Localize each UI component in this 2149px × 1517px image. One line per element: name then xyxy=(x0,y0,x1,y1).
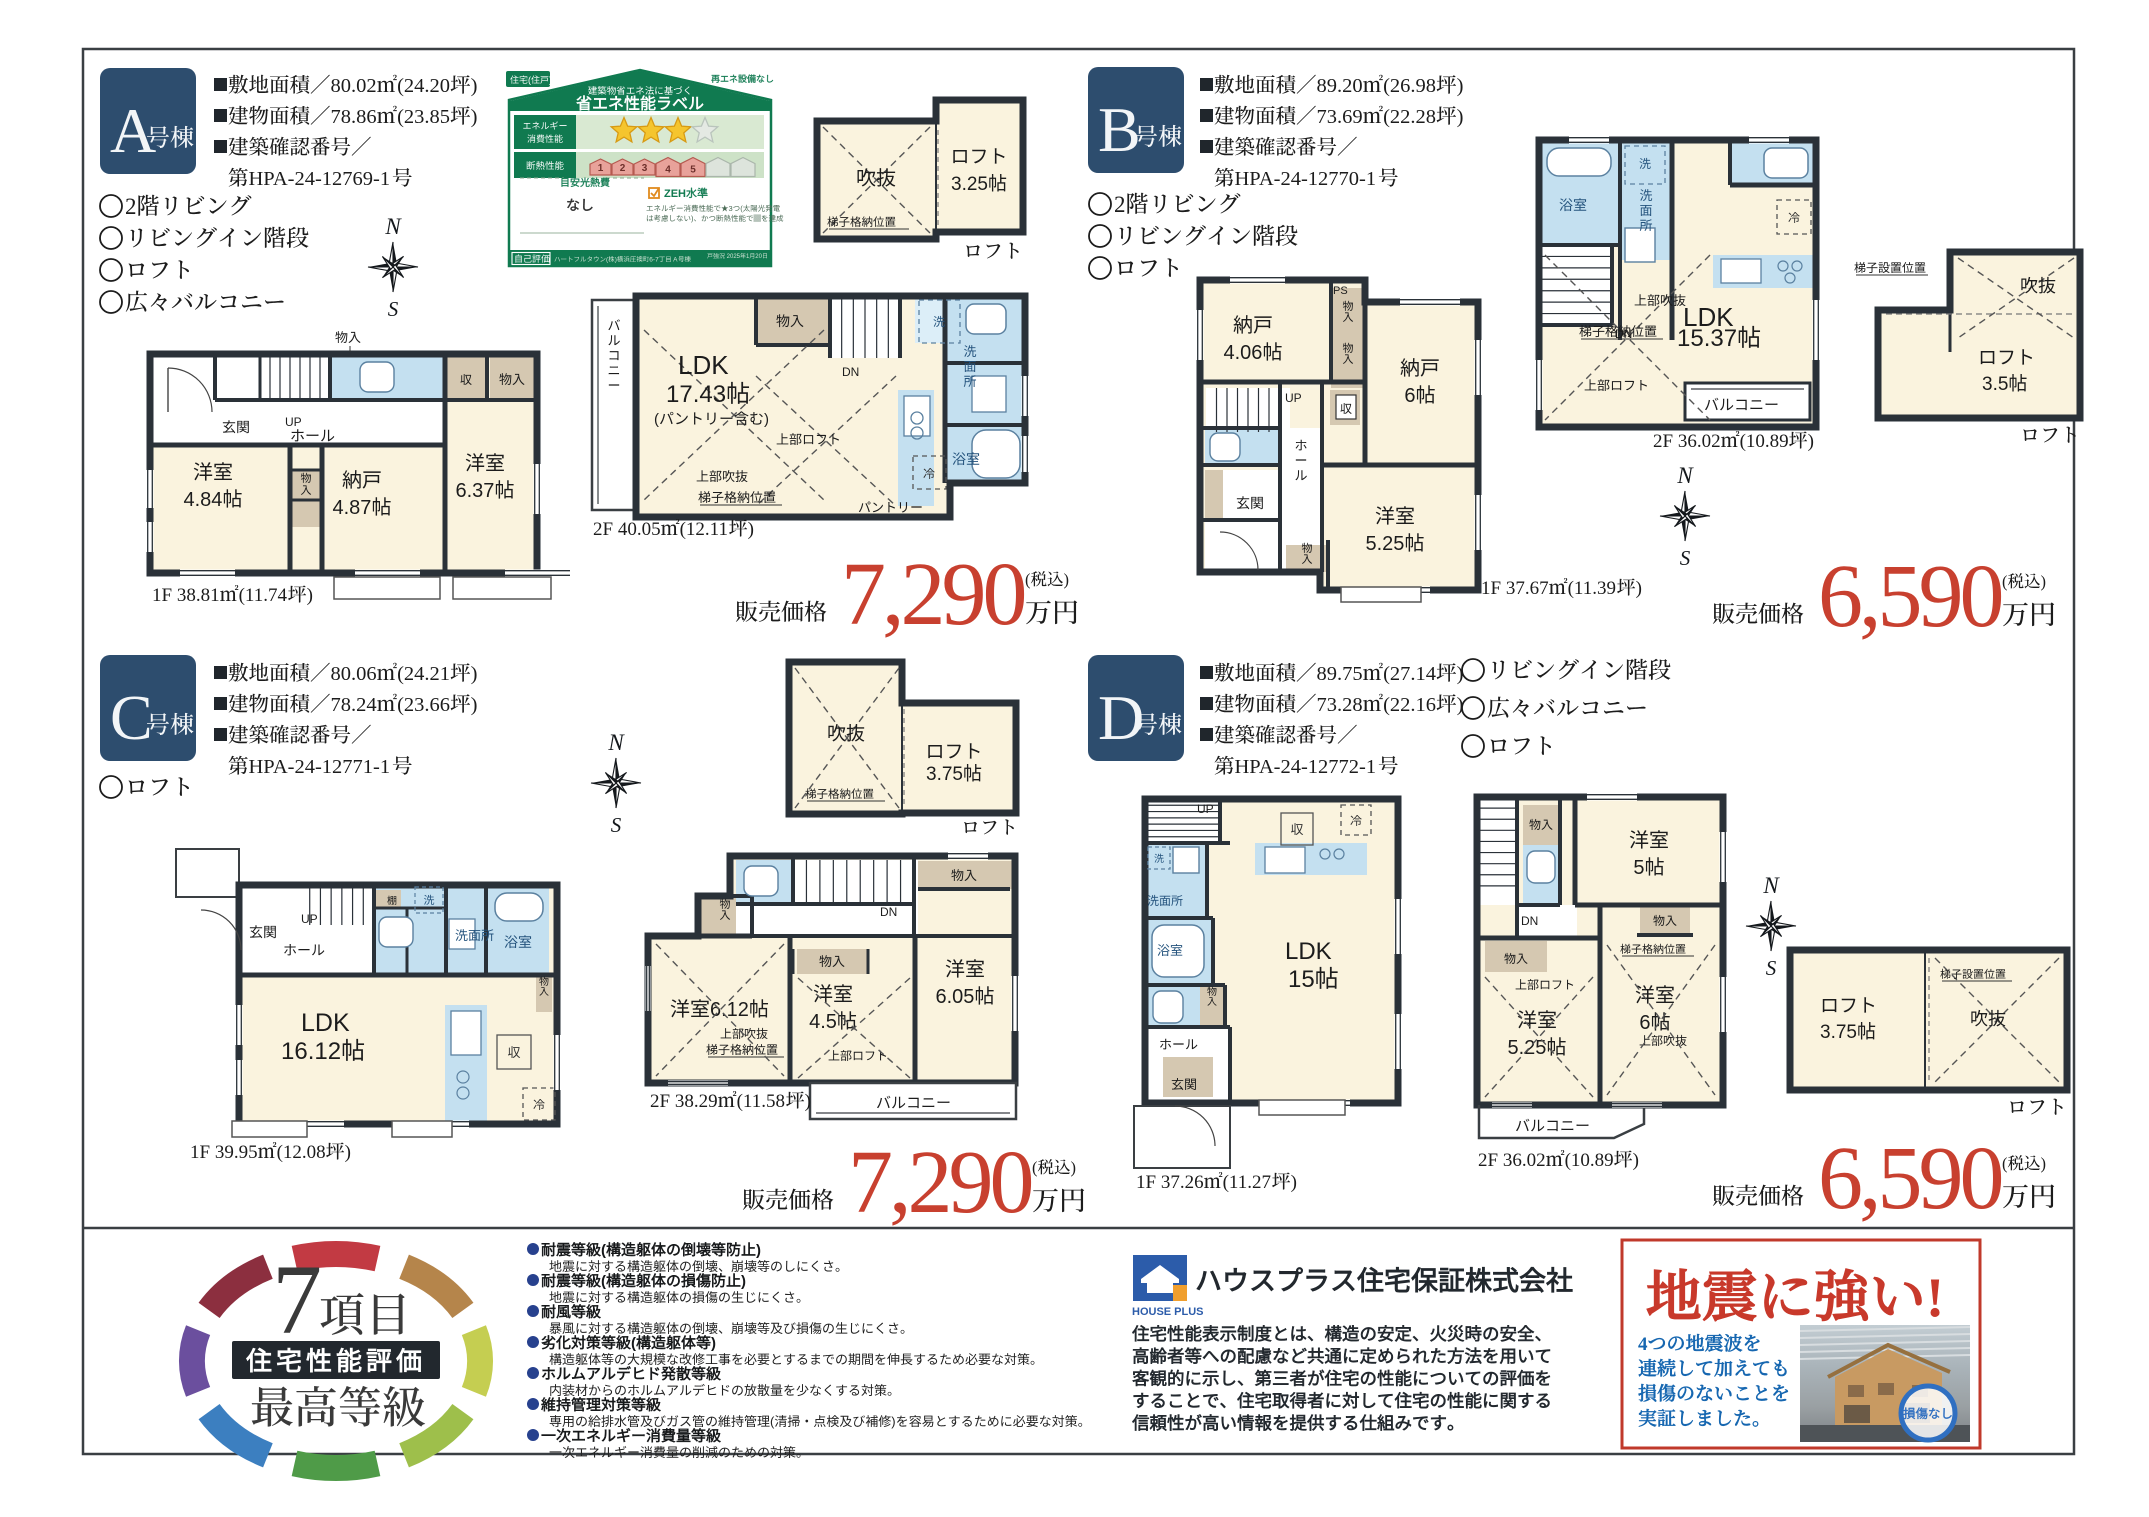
svg-text:3.25: 3.25 xyxy=(951,174,988,195)
svg-text:7,290: 7,290 xyxy=(841,545,1025,644)
svg-text:7,290: 7,290 xyxy=(848,1133,1032,1232)
svg-text:A: A xyxy=(672,257,678,264)
svg-text:2F 40.05: 2F 40.05 xyxy=(593,519,661,540)
svg-text:20: 20 xyxy=(755,254,762,260)
svg-text:6.05: 6.05 xyxy=(936,986,975,1008)
svg-text:7: 7 xyxy=(272,1244,322,1355)
svg-text:2: 2 xyxy=(125,194,137,219)
svg-text:(12.08: (12.08 xyxy=(277,1142,326,1163)
svg-text:6,590: 6,590 xyxy=(1818,1129,2002,1228)
svg-text:80.02: 80.02 xyxy=(331,75,377,97)
svg-text:): ) xyxy=(1633,1150,1639,1171)
svg-text:S: S xyxy=(1680,546,1691,570)
svg-text:(: ( xyxy=(2002,572,2008,591)
svg-text:4.84: 4.84 xyxy=(184,489,223,511)
svg-text:(: ( xyxy=(528,75,531,85)
svg-text:(: ( xyxy=(601,1242,606,1259)
svg-text:(10.89: (10.89 xyxy=(1740,431,1789,452)
svg-text:(: ( xyxy=(654,411,659,428)
svg-text:): ) xyxy=(1808,431,1814,452)
svg-text:UP: UP xyxy=(1285,391,1302,405)
svg-text:78.86: 78.86 xyxy=(331,106,377,128)
svg-text:(12.11: (12.11 xyxy=(680,519,728,540)
svg-text:(: ( xyxy=(601,1273,606,1290)
svg-text:1F 39.95: 1F 39.95 xyxy=(190,1142,258,1163)
svg-text:2F 36.02: 2F 36.02 xyxy=(1653,431,1721,452)
svg-text:): ) xyxy=(307,585,313,606)
svg-text:): ) xyxy=(1291,1172,1297,1193)
svg-text:(10.89: (10.89 xyxy=(1565,1150,1614,1171)
svg-text:): ) xyxy=(741,1273,746,1290)
svg-text:): ) xyxy=(549,75,552,85)
svg-text:15.37: 15.37 xyxy=(1677,325,1737,352)
svg-text:17.43: 17.43 xyxy=(666,381,726,408)
svg-text:): ) xyxy=(756,1242,761,1259)
svg-text:2: 2 xyxy=(620,163,626,174)
svg-text:): ) xyxy=(891,1414,895,1429)
svg-text:(11.74: (11.74 xyxy=(239,585,288,606)
svg-text:6.37: 6.37 xyxy=(456,480,495,502)
svg-text:89.20: 89.20 xyxy=(1317,75,1363,97)
svg-text:3: 3 xyxy=(729,204,733,213)
svg-text:2F 36.02: 2F 36.02 xyxy=(1478,1150,1546,1171)
svg-text:3.75: 3.75 xyxy=(926,764,963,785)
svg-text:N: N xyxy=(384,214,402,239)
svg-text:5: 5 xyxy=(690,165,696,176)
svg-text:!: ! xyxy=(1926,1267,1945,1329)
svg-text:): ) xyxy=(1636,578,1642,599)
svg-text:1F 37.67: 1F 37.67 xyxy=(1481,578,1549,599)
svg-text:N: N xyxy=(607,730,625,755)
svg-text:): ) xyxy=(1071,1158,1077,1177)
svg-text:DN: DN xyxy=(1521,914,1538,928)
svg-text:(22.16: (22.16 xyxy=(1383,694,1436,716)
svg-text:5.25: 5.25 xyxy=(1508,1037,1547,1059)
svg-text:DN: DN xyxy=(880,905,897,919)
svg-text:LDK: LDK xyxy=(678,350,729,380)
svg-text:6.12: 6.12 xyxy=(710,999,749,1021)
svg-text:): ) xyxy=(471,663,478,685)
svg-text:2: 2 xyxy=(1114,192,1126,217)
svg-text:): ) xyxy=(471,694,478,716)
svg-text:): ) xyxy=(2041,572,2047,591)
svg-text:): ) xyxy=(2041,1154,2047,1173)
svg-text:3.75: 3.75 xyxy=(1820,1022,1857,1043)
svg-text:S: S xyxy=(611,813,622,837)
svg-text:UP: UP xyxy=(285,415,302,429)
svg-text:HPA-24-12771-1: HPA-24-12771-1 xyxy=(249,756,391,778)
svg-text:N: N xyxy=(1676,463,1694,488)
svg-text:UP: UP xyxy=(301,912,318,926)
svg-text:(23.66: (23.66 xyxy=(397,694,450,716)
svg-text:6-7: 6-7 xyxy=(649,257,659,264)
svg-text:5: 5 xyxy=(1633,857,1644,879)
svg-text:(24.21: (24.21 xyxy=(397,663,450,685)
svg-text:15: 15 xyxy=(1288,966,1315,993)
svg-text:B: B xyxy=(1098,94,1141,165)
svg-text:3.5: 3.5 xyxy=(1982,374,2008,395)
svg-text:(: ( xyxy=(2002,1154,2008,1173)
svg-text:): ) xyxy=(1457,106,1464,128)
svg-text:ZEH: ZEH xyxy=(664,188,686,200)
svg-text:DN: DN xyxy=(842,365,859,379)
svg-text:S: S xyxy=(388,297,399,321)
svg-text:(: ( xyxy=(1032,1158,1038,1177)
svg-text:5.25: 5.25 xyxy=(1366,533,1405,555)
svg-text:2F 38.29: 2F 38.29 xyxy=(650,1091,718,1112)
svg-text:(24.20: (24.20 xyxy=(397,75,450,97)
svg-text:4: 4 xyxy=(1638,1334,1648,1355)
svg-text:): ) xyxy=(748,519,754,540)
svg-text:80.06: 80.06 xyxy=(331,663,377,685)
svg-text:): ) xyxy=(471,75,478,97)
svg-text:4: 4 xyxy=(665,165,671,176)
svg-text:HPA-24-12770-1: HPA-24-12770-1 xyxy=(1235,168,1377,190)
svg-text:LDK: LDK xyxy=(301,1009,350,1037)
svg-text:2025: 2025 xyxy=(725,254,741,260)
svg-text:PS: PS xyxy=(1333,285,1348,297)
svg-text:(22.28: (22.28 xyxy=(1383,106,1436,128)
svg-text:): ) xyxy=(764,411,769,428)
svg-text:(11.58: (11.58 xyxy=(737,1091,785,1112)
svg-text:HPA-24-12769-1: HPA-24-12769-1 xyxy=(249,168,391,190)
svg-text:(: ( xyxy=(770,1414,775,1429)
svg-text:): ) xyxy=(1064,570,1070,589)
svg-text:1F 37.26: 1F 37.26 xyxy=(1136,1172,1204,1193)
svg-text:78.24: 78.24 xyxy=(331,694,377,716)
svg-text:(11.27: (11.27 xyxy=(1223,1172,1271,1193)
svg-text:(23.85: (23.85 xyxy=(397,106,450,128)
svg-text:): ) xyxy=(615,257,617,264)
svg-text:): ) xyxy=(471,106,478,128)
svg-text:(: ( xyxy=(1025,570,1031,589)
svg-text:LDK: LDK xyxy=(1285,938,1332,965)
svg-text:): ) xyxy=(1457,75,1464,97)
svg-text:3: 3 xyxy=(642,163,648,174)
svg-text:UP: UP xyxy=(1197,802,1214,816)
svg-text:(26.98: (26.98 xyxy=(1383,75,1436,97)
svg-text:4.87: 4.87 xyxy=(333,497,372,519)
svg-text:16.12: 16.12 xyxy=(281,1038,341,1065)
svg-text:HOUSE PLUS: HOUSE PLUS xyxy=(1132,1306,1204,1318)
svg-text:89.75: 89.75 xyxy=(1317,663,1363,685)
svg-text:C: C xyxy=(110,682,153,753)
svg-text:6,590: 6,590 xyxy=(1818,547,2002,646)
svg-text:HPA-24-12772-1: HPA-24-12772-1 xyxy=(1235,756,1377,778)
svg-text:D: D xyxy=(1098,682,1144,753)
svg-text:6: 6 xyxy=(1639,1012,1650,1034)
svg-text:1: 1 xyxy=(598,163,604,174)
svg-text:73.69: 73.69 xyxy=(1317,106,1363,128)
svg-text:A: A xyxy=(110,95,156,166)
svg-text:(27.14: (27.14 xyxy=(1383,663,1436,685)
svg-text:): ) xyxy=(805,1091,811,1112)
svg-text:N: N xyxy=(1762,873,1780,898)
svg-text:): ) xyxy=(345,1142,351,1163)
svg-text:6: 6 xyxy=(1404,385,1415,407)
svg-text:): ) xyxy=(711,1335,716,1352)
svg-text:73.28: 73.28 xyxy=(1317,694,1363,716)
svg-text:(11.39: (11.39 xyxy=(1568,578,1616,599)
svg-text:(: ( xyxy=(631,1335,636,1352)
svg-text:1F 38.81: 1F 38.81 xyxy=(152,585,220,606)
svg-text:4.5: 4.5 xyxy=(809,1011,837,1033)
svg-text:S: S xyxy=(1766,956,1777,980)
svg-text:4.06: 4.06 xyxy=(1224,342,1263,364)
